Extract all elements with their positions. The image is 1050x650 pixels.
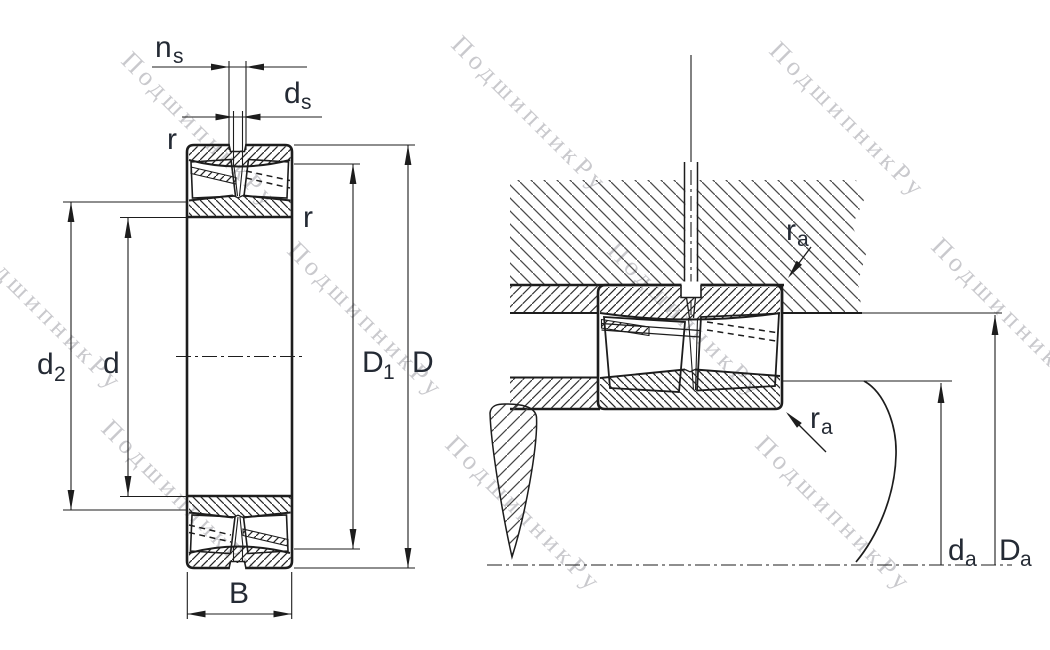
technical-drawing: ПодшипникРу ПодшипникРу ПодшипникРу Подш…	[0, 0, 1050, 650]
dimension-label-ns-sub: s	[173, 45, 184, 68]
d-arrow-bottom	[125, 476, 132, 496]
dimension-label-ra-housing: r	[786, 214, 796, 247]
cage-section-bottom	[243, 529, 288, 546]
dimension-label-Da: D	[999, 534, 1021, 567]
dimension-label-ds-sub: s	[301, 91, 312, 114]
B-arrow-left	[188, 611, 206, 618]
d2-arrow-top	[68, 202, 75, 222]
B-arrow-right	[274, 611, 292, 618]
dimension-label-da-sub: a	[965, 548, 977, 571]
dimension-label-Da-sub: a	[1020, 548, 1032, 571]
ns-arrow-right	[246, 64, 264, 71]
ds-arrow-right	[243, 114, 261, 121]
dimension-label-B: B	[229, 577, 249, 610]
ns-ext-lines	[229, 61, 246, 150]
dimension-label-D1: D	[362, 346, 384, 379]
D1-arrow-bottom	[350, 529, 357, 549]
watermark-text: ПодшипникРу	[750, 430, 919, 599]
groove-erase-mounted	[682, 282, 701, 298]
watermark-text: ПодшипникРу	[764, 36, 933, 205]
shaft-abutment-sleeve	[510, 378, 598, 409]
watermark-text: ПодшипникРу	[282, 236, 451, 405]
watermark-text: ПодшипникРу	[926, 232, 1050, 401]
outer-ring-abutment-ring	[510, 286, 598, 313]
dimension-label-ra-housing-sub: a	[797, 228, 809, 251]
da-arrow	[938, 383, 945, 403]
cage-section-mounted	[602, 320, 650, 336]
dimension-label-ds: d	[284, 77, 301, 110]
ds-arrow-left	[216, 114, 234, 121]
dimension-label-D1-sub: 1	[383, 361, 395, 384]
dimension-label-d2-sub: 2	[54, 363, 66, 386]
groove-erase-bottom	[230, 563, 245, 573]
dimension-label-ns: n	[155, 31, 172, 64]
dimension-label-r-inner: r	[303, 201, 313, 234]
dimension-label-ra-shaft-sub: a	[821, 416, 833, 439]
D-arrow-top	[405, 145, 412, 165]
D1-arrow-top	[350, 164, 357, 184]
watermark-text: ПодшипникРу	[116, 46, 285, 215]
dimension-label-da: d	[948, 534, 965, 567]
watermark-text: ПодшипникРу	[446, 30, 615, 199]
dimension-label-d2: d	[37, 348, 54, 381]
d-arrow-top	[125, 218, 132, 238]
dimension-label-D: D	[412, 346, 434, 379]
watermark-layer: ПодшипникРу ПодшипникРу ПодшипникРу Подш…	[0, 30, 1050, 599]
d2-arrow-bottom	[68, 490, 75, 510]
dimension-label-d: d	[103, 347, 120, 380]
ns-arrow-left	[211, 64, 229, 71]
dimension-label-r-outer: r	[167, 123, 177, 156]
dimension-label-ra-shaft: r	[810, 402, 820, 435]
D-arrow-bottom	[405, 548, 412, 568]
